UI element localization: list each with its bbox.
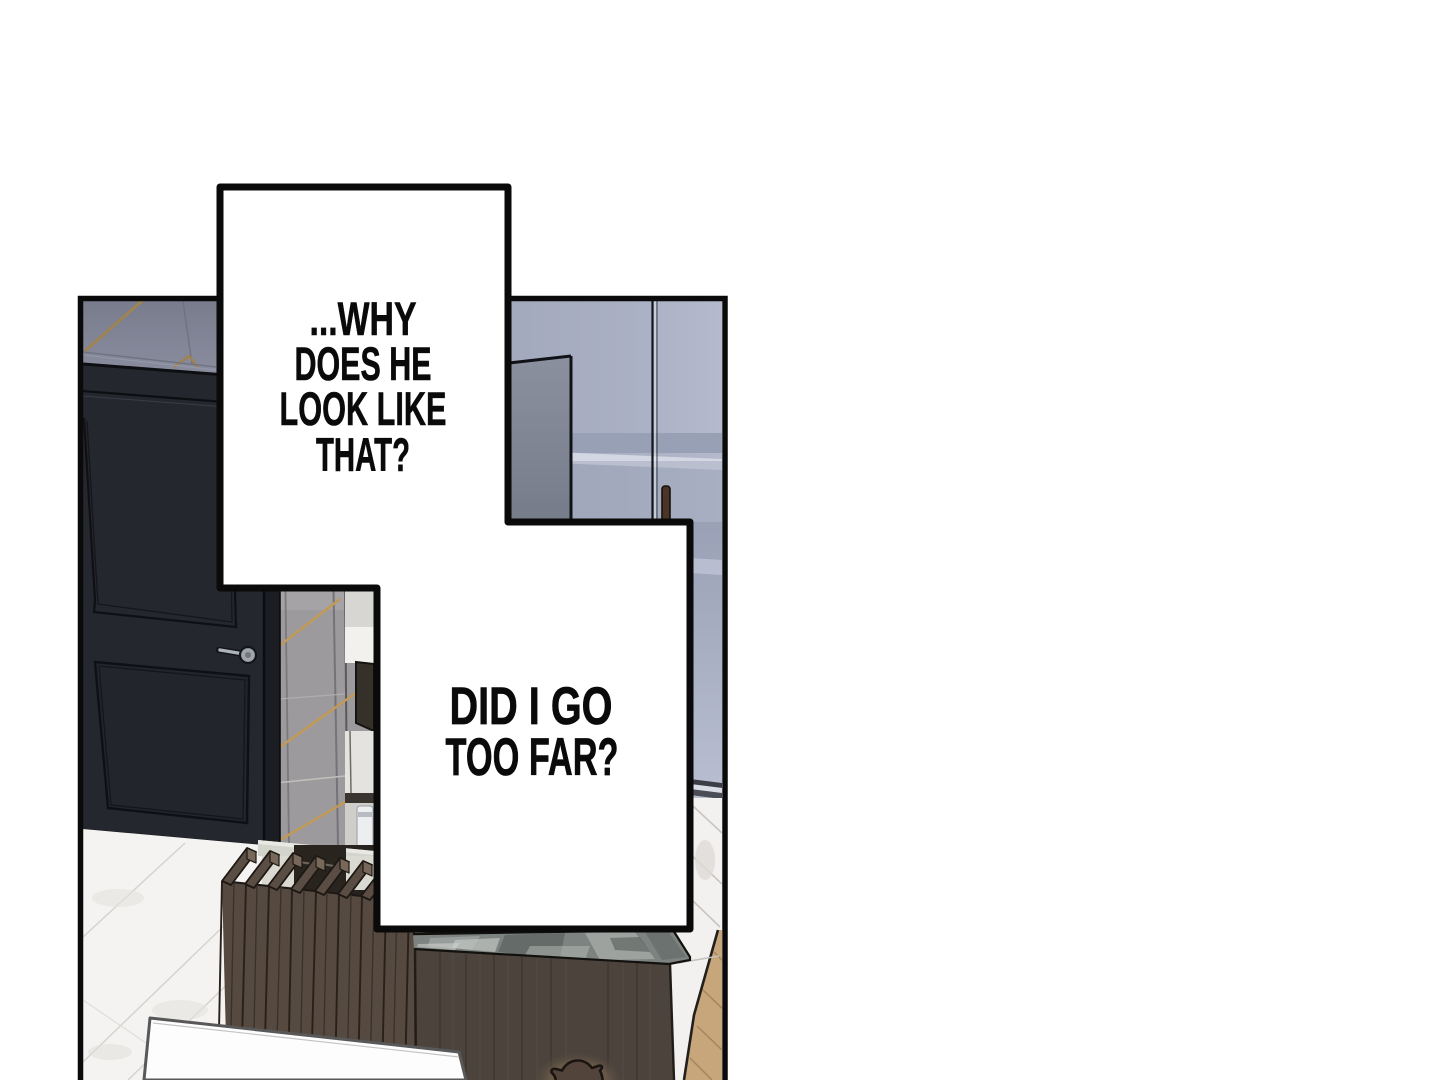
svg-text:THAT?: THAT? — [316, 428, 410, 481]
svg-text:TOO FAR?: TOO FAR? — [446, 728, 619, 787]
